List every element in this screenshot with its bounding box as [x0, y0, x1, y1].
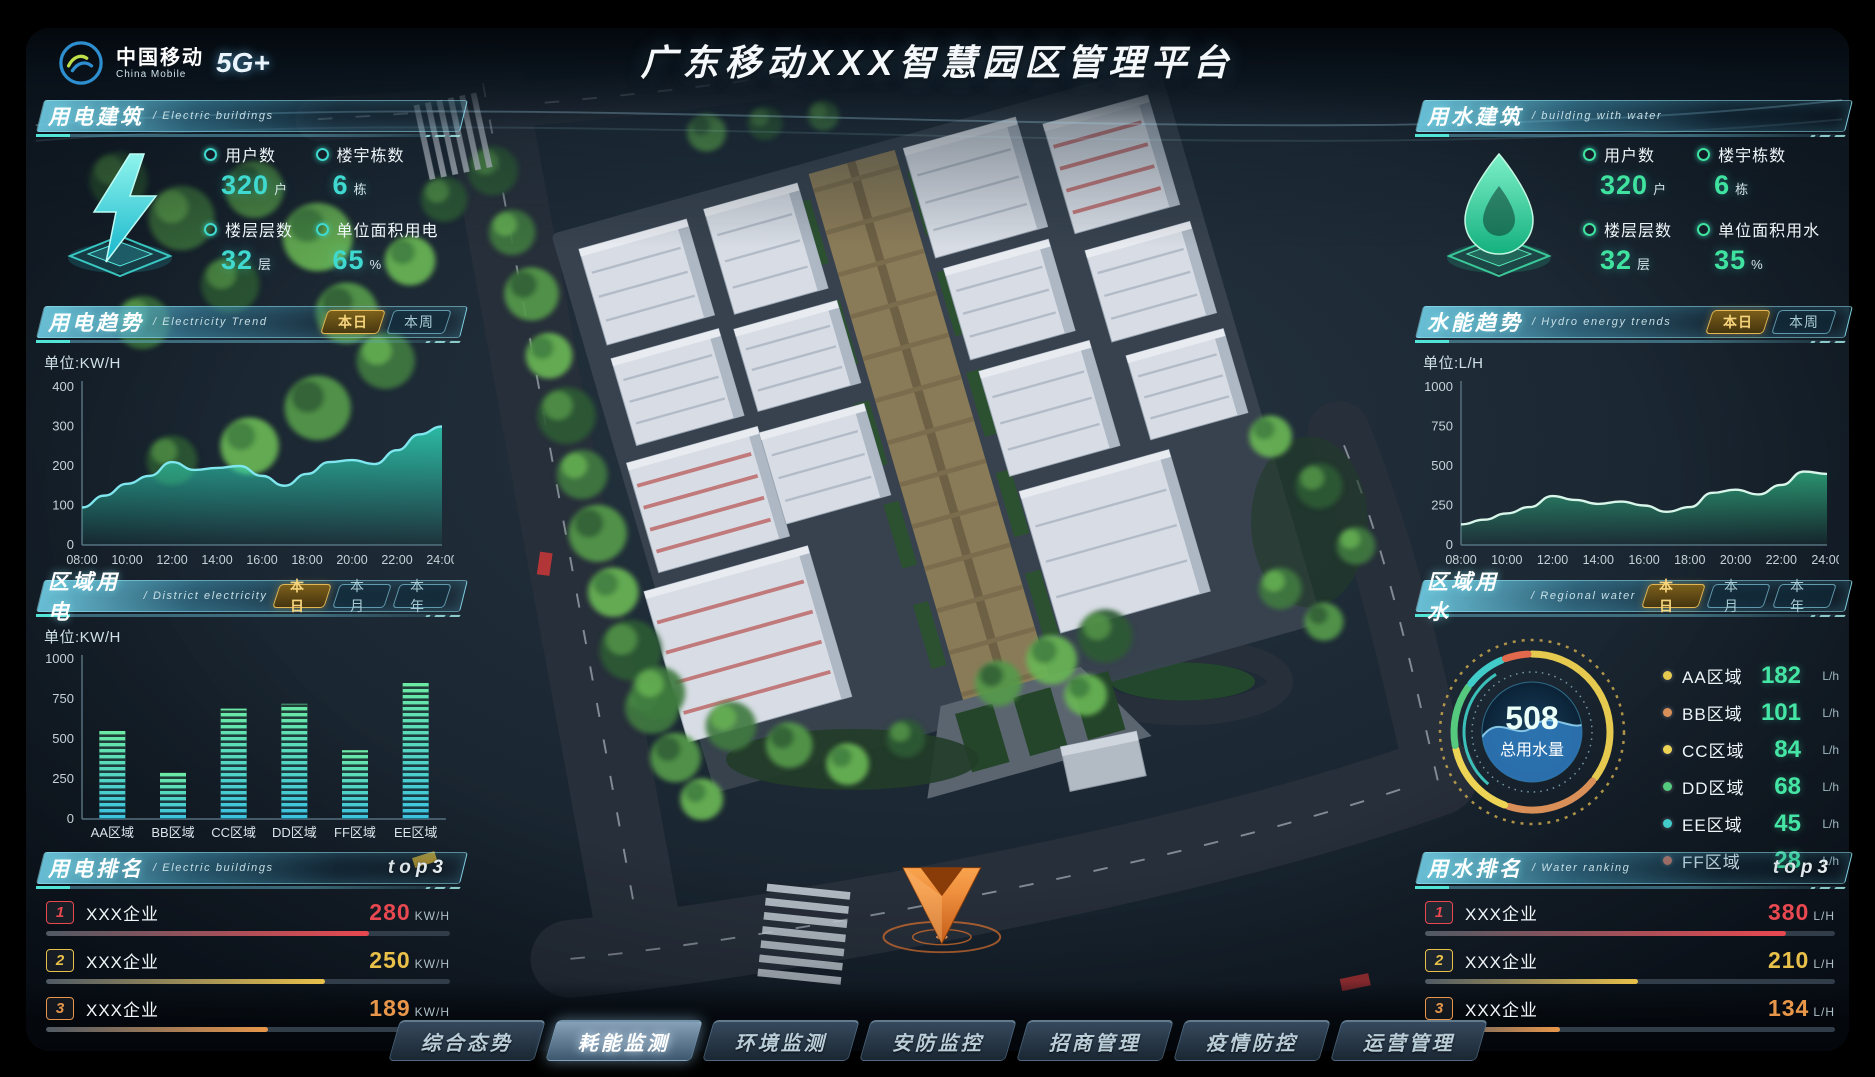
- rank-value: 210L/H: [1768, 947, 1835, 974]
- rank-badge: 3: [46, 997, 74, 1020]
- stat-label: 楼层层数: [225, 217, 293, 241]
- tab-本日[interactable]: 本日: [320, 310, 386, 334]
- header-deco: [421, 134, 460, 137]
- stat-item: 楼层层数32层: [204, 217, 310, 276]
- svg-text:16:00: 16:00: [1628, 553, 1659, 567]
- legend-item: DD区域68L/h: [1663, 768, 1839, 805]
- svg-text:250: 250: [1431, 498, 1453, 513]
- stat-dot-icon: [1697, 223, 1710, 236]
- nav-item-运营管理[interactable]: 运营管理: [1330, 1020, 1488, 1061]
- ranking-row: 1XXX企业280KW/H: [46, 899, 450, 936]
- svg-text:14:00: 14:00: [201, 553, 232, 567]
- stat-value: 65%: [333, 245, 458, 276]
- stat-dot-icon: [316, 148, 329, 161]
- nav-item-耗能监测[interactable]: 耗能监测: [545, 1020, 703, 1061]
- legend-item: AA区域182L/h: [1663, 657, 1839, 694]
- svg-text:14:00: 14:00: [1583, 553, 1614, 567]
- svg-text:DD区域: DD区域: [272, 825, 317, 840]
- gauge-total-value: 508: [1505, 700, 1558, 736]
- stat-dot-icon: [316, 223, 329, 236]
- panel-water-ranking: 用水排名 / Water ranking top3 1XXX企业380L/H2X…: [1415, 852, 1845, 1020]
- rank-value: 380L/H: [1768, 899, 1835, 926]
- panel-title: 用电趋势: [48, 307, 144, 337]
- electric-building-stats: 用户数320户楼宇栋数6栋楼层层数32层单位面积用电65%: [204, 142, 458, 276]
- stat-item: 单位面积用水35%: [1697, 217, 1843, 276]
- panel-title: 用水排名: [1427, 853, 1523, 883]
- legend-item: EE区域45L/h: [1663, 805, 1839, 842]
- rank-name: XXX企业: [1465, 900, 1538, 925]
- svg-text:CC区域: CC区域: [211, 825, 256, 840]
- legend-unit: L/h: [1801, 743, 1839, 757]
- panel-title: 水能趋势: [1427, 307, 1523, 337]
- svg-text:500: 500: [52, 731, 74, 746]
- svg-text:1000: 1000: [1424, 379, 1453, 394]
- header-deco: [1806, 134, 1845, 137]
- svg-text:BB区域: BB区域: [151, 825, 194, 840]
- header-deco: [1806, 886, 1845, 889]
- legend-unit: L/h: [1801, 706, 1839, 720]
- panel-title: 用电建筑: [48, 101, 144, 131]
- svg-text:500: 500: [1431, 458, 1453, 473]
- nav-item-环境监测[interactable]: 环境监测: [702, 1020, 860, 1061]
- legend-name: AA区域: [1682, 663, 1743, 688]
- regional-water-legend: AA区域182L/hBB区域101L/hCC区域84L/hDD区域68L/hEE…: [1663, 657, 1839, 879]
- svg-text:300: 300: [52, 419, 74, 434]
- stat-value: 320户: [221, 170, 310, 201]
- rank-badge: 3: [1425, 997, 1453, 1020]
- tab-本年[interactable]: 本年: [1772, 584, 1837, 608]
- tab-本日[interactable]: 本日: [1705, 310, 1771, 334]
- panel-subtitle: / Regional water: [1531, 590, 1636, 602]
- stat-label: 楼层层数: [1604, 217, 1672, 241]
- svg-text:18:00: 18:00: [291, 553, 322, 567]
- rank-name: XXX企业: [86, 996, 159, 1021]
- rank-value: 134L/H: [1768, 995, 1835, 1022]
- stat-dot-icon: [1583, 148, 1596, 161]
- panel-header: 用电排名 / Electric buildings top3: [36, 852, 460, 884]
- legend-value: 182: [1761, 662, 1801, 690]
- stat-value: 6栋: [1714, 170, 1843, 201]
- rank-bar: [1425, 979, 1835, 984]
- tab-本月[interactable]: 本月: [1706, 584, 1771, 608]
- ranking-row: 2XXX企业250KW/H: [46, 947, 450, 984]
- nav-item-招商管理[interactable]: 招商管理: [1016, 1020, 1174, 1061]
- water-drop-icon: [1423, 140, 1575, 290]
- stat-label: 用户数: [1604, 142, 1655, 166]
- water-usage-gauge: 508总用水量: [1425, 625, 1639, 839]
- rank-badge: 1: [46, 901, 74, 924]
- tab-本日[interactable]: 本日: [1641, 584, 1706, 608]
- panel-header: 用水建筑 / building with water: [1415, 100, 1845, 132]
- rank-bar: [1425, 931, 1835, 936]
- tab-本周[interactable]: 本周: [386, 310, 452, 334]
- svg-text:10:00: 10:00: [1491, 553, 1522, 567]
- water-ranking-list: 1XXX企业380L/H2XXX企业210L/H3XXX企业134L/H: [1415, 889, 1845, 1032]
- legend-name: EE区域: [1682, 811, 1743, 836]
- stat-value: 32层: [221, 245, 310, 276]
- tab-本日[interactable]: 本日: [273, 584, 333, 608]
- stat-dot-icon: [204, 223, 217, 236]
- electric-ranking-list: 1XXX企业280KW/H2XXX企业250KW/H3XXX企业189KW/H: [36, 889, 460, 1032]
- stat-item: 楼层层数32层: [1583, 217, 1691, 276]
- svg-text:1000: 1000: [45, 651, 74, 666]
- legend-unit: L/h: [1801, 780, 1839, 794]
- svg-text:20:00: 20:00: [1720, 553, 1751, 567]
- stat-dot-icon: [1697, 148, 1710, 161]
- tab-本月[interactable]: 本月: [332, 584, 392, 608]
- rank-name: XXX企业: [1465, 948, 1538, 973]
- panel-header: 区域用水 / Regional water 本日本月本年: [1415, 580, 1845, 612]
- stat-dot-icon: [204, 148, 217, 161]
- legend-value: 101: [1761, 699, 1801, 727]
- panel-subtitle: / building with water: [1532, 110, 1662, 122]
- svg-text:08:00: 08:00: [1445, 553, 1476, 567]
- legend-value: 45: [1774, 810, 1801, 838]
- stat-dot-icon: [1583, 223, 1596, 236]
- panel-title: 用电排名: [48, 853, 144, 883]
- svg-text:0: 0: [67, 811, 74, 826]
- stat-item: 用户数320户: [204, 142, 310, 201]
- trend-tabs: 本日本周: [324, 310, 448, 334]
- svg-text:400: 400: [52, 379, 74, 394]
- panel-subtitle: / Electric buildings: [153, 862, 274, 874]
- svg-text:250: 250: [52, 771, 74, 786]
- panel-regional-water: 区域用水 / Regional water 本日本月本年 508总用水量 AA区…: [1415, 580, 1845, 846]
- svg-text:22:00: 22:00: [1766, 553, 1797, 567]
- svg-text:08:00: 08:00: [66, 553, 97, 567]
- svg-text:10:00: 10:00: [111, 553, 142, 567]
- svg-text:200: 200: [52, 458, 74, 473]
- gauge-total-label: 总用水量: [1500, 741, 1564, 759]
- panel-title: 区域用电: [48, 566, 135, 626]
- legend-dot-icon: [1663, 671, 1672, 680]
- svg-text:AA区域: AA区域: [91, 825, 134, 840]
- panel-header: 用电建筑 / Electric buildings: [36, 100, 460, 132]
- hydro-trend-chart: 0250500750100008:0010:0012:0014:0016:001…: [1415, 373, 1839, 575]
- legend-item: CC区域84L/h: [1663, 731, 1839, 768]
- ranking-row: 2XXX企业210L/H: [1425, 947, 1835, 984]
- tab-本年[interactable]: 本年: [392, 584, 452, 608]
- legend-dot-icon: [1663, 708, 1672, 717]
- panel-subtitle: / Electric buildings: [153, 110, 274, 122]
- stat-item: 单位面积用电65%: [316, 217, 458, 276]
- ranking-row: 1XXX企业380L/H: [1425, 899, 1835, 936]
- rank-badge: 2: [46, 949, 74, 972]
- lightning-icon: [44, 140, 196, 290]
- stat-label: 用户数: [225, 142, 276, 166]
- nav-item-疫情防控[interactable]: 疫情防控: [1173, 1020, 1331, 1061]
- svg-text:24:00: 24:00: [426, 553, 454, 567]
- stat-value: 320户: [1600, 170, 1691, 201]
- stat-label: 楼宇栋数: [1718, 142, 1786, 166]
- svg-text:EE区域: EE区域: [394, 825, 437, 840]
- tab-本周[interactable]: 本周: [1771, 310, 1837, 334]
- stat-label: 单位面积用电: [337, 217, 439, 241]
- stat-item: 用户数320户: [1583, 142, 1691, 201]
- hydro-tabs: 本日本周: [1709, 310, 1833, 334]
- panel-electricity-trend: 用电趋势 / Electricity Trend 本日本周 单位:KW/H 01…: [36, 306, 460, 572]
- panel-header: 用水排名 / Water ranking top3: [1415, 852, 1845, 884]
- water-building-stats: 用户数320户楼宇栋数6栋楼层层数32层单位面积用水35%: [1583, 142, 1843, 276]
- header-deco: [1806, 340, 1845, 343]
- legend-name: DD区域: [1682, 774, 1745, 799]
- legend-value: 68: [1774, 773, 1801, 801]
- panel-header: 用电趋势 / Electricity Trend 本日本周: [36, 306, 460, 338]
- svg-text:FF区域: FF区域: [334, 825, 376, 840]
- nav-item-综合态势[interactable]: 综合态势: [388, 1020, 546, 1061]
- panel-electric-building: 用电建筑 / Electric buildings 用户数320户楼宇栋数6栋楼…: [36, 100, 460, 298]
- svg-text:100: 100: [52, 498, 74, 513]
- rank-name: XXX企业: [86, 900, 159, 925]
- svg-text:12:00: 12:00: [1537, 553, 1568, 567]
- svg-text:16:00: 16:00: [246, 553, 277, 567]
- header-deco: [421, 340, 460, 343]
- stat-label: 单位面积用水: [1718, 217, 1820, 241]
- svg-text:750: 750: [52, 691, 74, 706]
- stat-label: 楼宇栋数: [337, 142, 405, 166]
- stat-value: 32层: [1600, 245, 1691, 276]
- svg-text:22:00: 22:00: [381, 553, 412, 567]
- panel-header: 区域用电 / District electricity 本日本月本年: [36, 580, 460, 612]
- svg-text:750: 750: [1431, 419, 1453, 434]
- legend-dot-icon: [1663, 819, 1672, 828]
- nav-item-安防监控[interactable]: 安防监控: [859, 1020, 1017, 1061]
- regional-water-tabs: 本日本月本年: [1645, 584, 1833, 608]
- legend-dot-icon: [1663, 745, 1672, 754]
- panel-title: 用水建筑: [1427, 101, 1523, 131]
- district-tabs: 本日本月本年: [276, 584, 448, 608]
- legend-unit: L/h: [1801, 817, 1839, 831]
- rank-bar: [46, 979, 450, 984]
- header-deco: [421, 614, 460, 617]
- legend-value: 84: [1774, 736, 1801, 764]
- svg-text:20:00: 20:00: [336, 553, 367, 567]
- unit-label: 单位:L/H: [1423, 352, 1845, 373]
- header-deco: [421, 886, 460, 889]
- stat-value: 35%: [1714, 245, 1843, 276]
- stat-item: 楼宇栋数6栋: [1697, 142, 1843, 201]
- panel-water-building: 用水建筑 / building with water 用户数320户楼宇栋数6栋…: [1415, 100, 1845, 298]
- legend-name: BB区域: [1682, 700, 1743, 725]
- page-title: 广东移动XXX智慧园区管理平台: [0, 34, 1875, 86]
- svg-text:24:00: 24:00: [1811, 553, 1839, 567]
- unit-label: 单位:KW/H: [44, 352, 460, 373]
- legend-dot-icon: [1663, 782, 1672, 791]
- panel-district-electricity: 区域用电 / District electricity 本日本月本年 单位:KW…: [36, 580, 460, 846]
- legend-name: CC区域: [1682, 737, 1745, 762]
- bottom-nav: 综合态势耗能监测环境监测安防监控招商管理疫情防控运营管理: [0, 1020, 1875, 1061]
- rank-value: 250KW/H: [369, 947, 450, 974]
- stat-item: 楼宇栋数6栋: [316, 142, 458, 201]
- svg-text:18:00: 18:00: [1674, 553, 1705, 567]
- rank-name: XXX企业: [1465, 996, 1538, 1021]
- rank-value: 189KW/H: [369, 995, 450, 1022]
- district-electricity-chart: 02505007501000AA区域BB区域CC区域DD区域FF区域EE区域: [36, 647, 454, 845]
- rank-value: 280KW/H: [369, 899, 450, 926]
- panel-subtitle: / Electricity Trend: [153, 316, 268, 328]
- panel-hydro-trend: 水能趋势 / Hydro energy trends 本日本周 单位:L/H 0…: [1415, 306, 1845, 572]
- electricity-trend-chart: 010020030040008:0010:0012:0014:0016:0018…: [36, 373, 454, 575]
- legend-unit: L/h: [1801, 669, 1839, 683]
- panel-subtitle: / District electricity: [144, 590, 268, 602]
- svg-text:0: 0: [67, 537, 74, 552]
- panel-subtitle: / Hydro energy trends: [1532, 316, 1671, 328]
- panel-subtitle: / Water ranking: [1532, 862, 1630, 874]
- panel-header: 水能趋势 / Hydro energy trends 本日本周: [1415, 306, 1845, 338]
- rank-name: XXX企业: [86, 948, 159, 973]
- svg-text:12:00: 12:00: [156, 553, 187, 567]
- legend-item: BB区域101L/h: [1663, 694, 1839, 731]
- svg-text:0: 0: [1446, 537, 1453, 552]
- stat-value: 6栋: [333, 170, 458, 201]
- unit-label: 单位:KW/H: [44, 626, 460, 647]
- rank-badge: 2: [1425, 949, 1453, 972]
- panel-electric-ranking: 用电排名 / Electric buildings top3 1XXX企业280…: [36, 852, 460, 1020]
- rank-badge: 1: [1425, 901, 1453, 924]
- rank-bar: [46, 931, 450, 936]
